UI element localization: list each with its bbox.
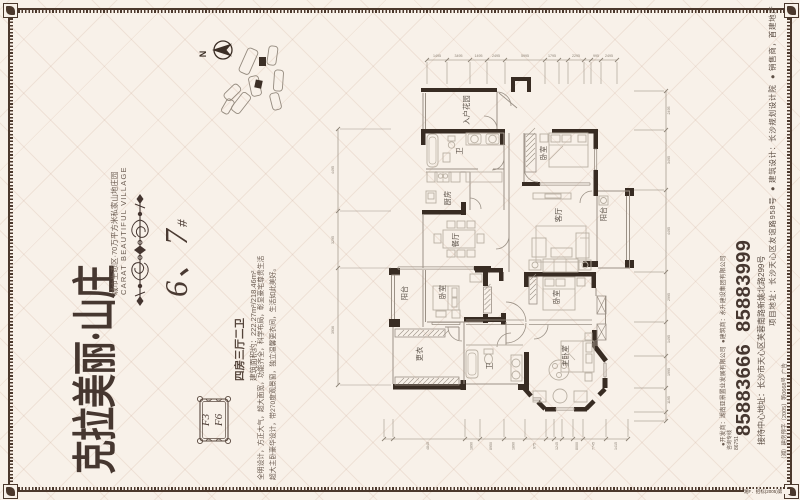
svg-text:客厅: 客厅: [554, 208, 563, 222]
svg-text:更衣: 更衣: [415, 347, 424, 361]
svg-text:3495: 3495: [667, 156, 671, 164]
svg-text:8950: 8950: [489, 442, 493, 450]
svg-text:主卧室: 主卧室: [561, 345, 570, 367]
svg-text:1195: 1195: [667, 396, 671, 404]
svg-text:1995: 1995: [667, 368, 671, 376]
svg-text:1495: 1495: [475, 54, 483, 58]
svg-text:2995: 2995: [667, 293, 671, 301]
svg-text:8000: 8000: [575, 442, 579, 450]
svg-text:7745: 7745: [592, 442, 596, 450]
svg-text:995: 995: [593, 54, 599, 58]
svg-text:2495: 2495: [492, 54, 500, 58]
svg-text:卫: 卫: [455, 147, 464, 154]
svg-text:阳台: 阳台: [400, 286, 409, 300]
svg-text:2495: 2495: [605, 54, 613, 58]
svg-text:2495: 2495: [667, 107, 671, 115]
svg-text:4495: 4495: [331, 166, 335, 174]
svg-text:1890: 1890: [512, 442, 516, 450]
svg-text:3936: 3936: [331, 326, 335, 334]
svg-text:975: 975: [533, 443, 537, 449]
svg-text:1795: 1795: [548, 54, 556, 58]
svg-text:4845: 4845: [426, 442, 430, 450]
svg-text:入户花园: 入户花园: [462, 95, 471, 125]
svg-text:2295: 2295: [572, 54, 580, 58]
svg-text:厨房: 厨房: [443, 191, 452, 205]
svg-text:卧室: 卧室: [552, 290, 561, 304]
svg-text:卧室: 卧室: [539, 146, 548, 160]
svg-text:3295: 3295: [331, 236, 335, 244]
svg-text:卫: 卫: [485, 362, 494, 369]
svg-text:1495: 1495: [433, 54, 441, 58]
svg-text:阳台: 阳台: [599, 207, 608, 221]
svg-text:1245: 1245: [555, 442, 559, 450]
svg-text:1890: 1890: [470, 442, 474, 450]
svg-text:3495: 3495: [455, 54, 463, 58]
svg-text:卧室: 卧室: [438, 285, 447, 299]
svg-text:餐厅: 餐厅: [451, 233, 460, 247]
svg-text:1415: 1415: [614, 442, 618, 450]
svg-text:1495: 1495: [667, 335, 671, 343]
svg-text:4495: 4495: [667, 227, 671, 235]
svg-text:5995: 5995: [521, 54, 529, 58]
